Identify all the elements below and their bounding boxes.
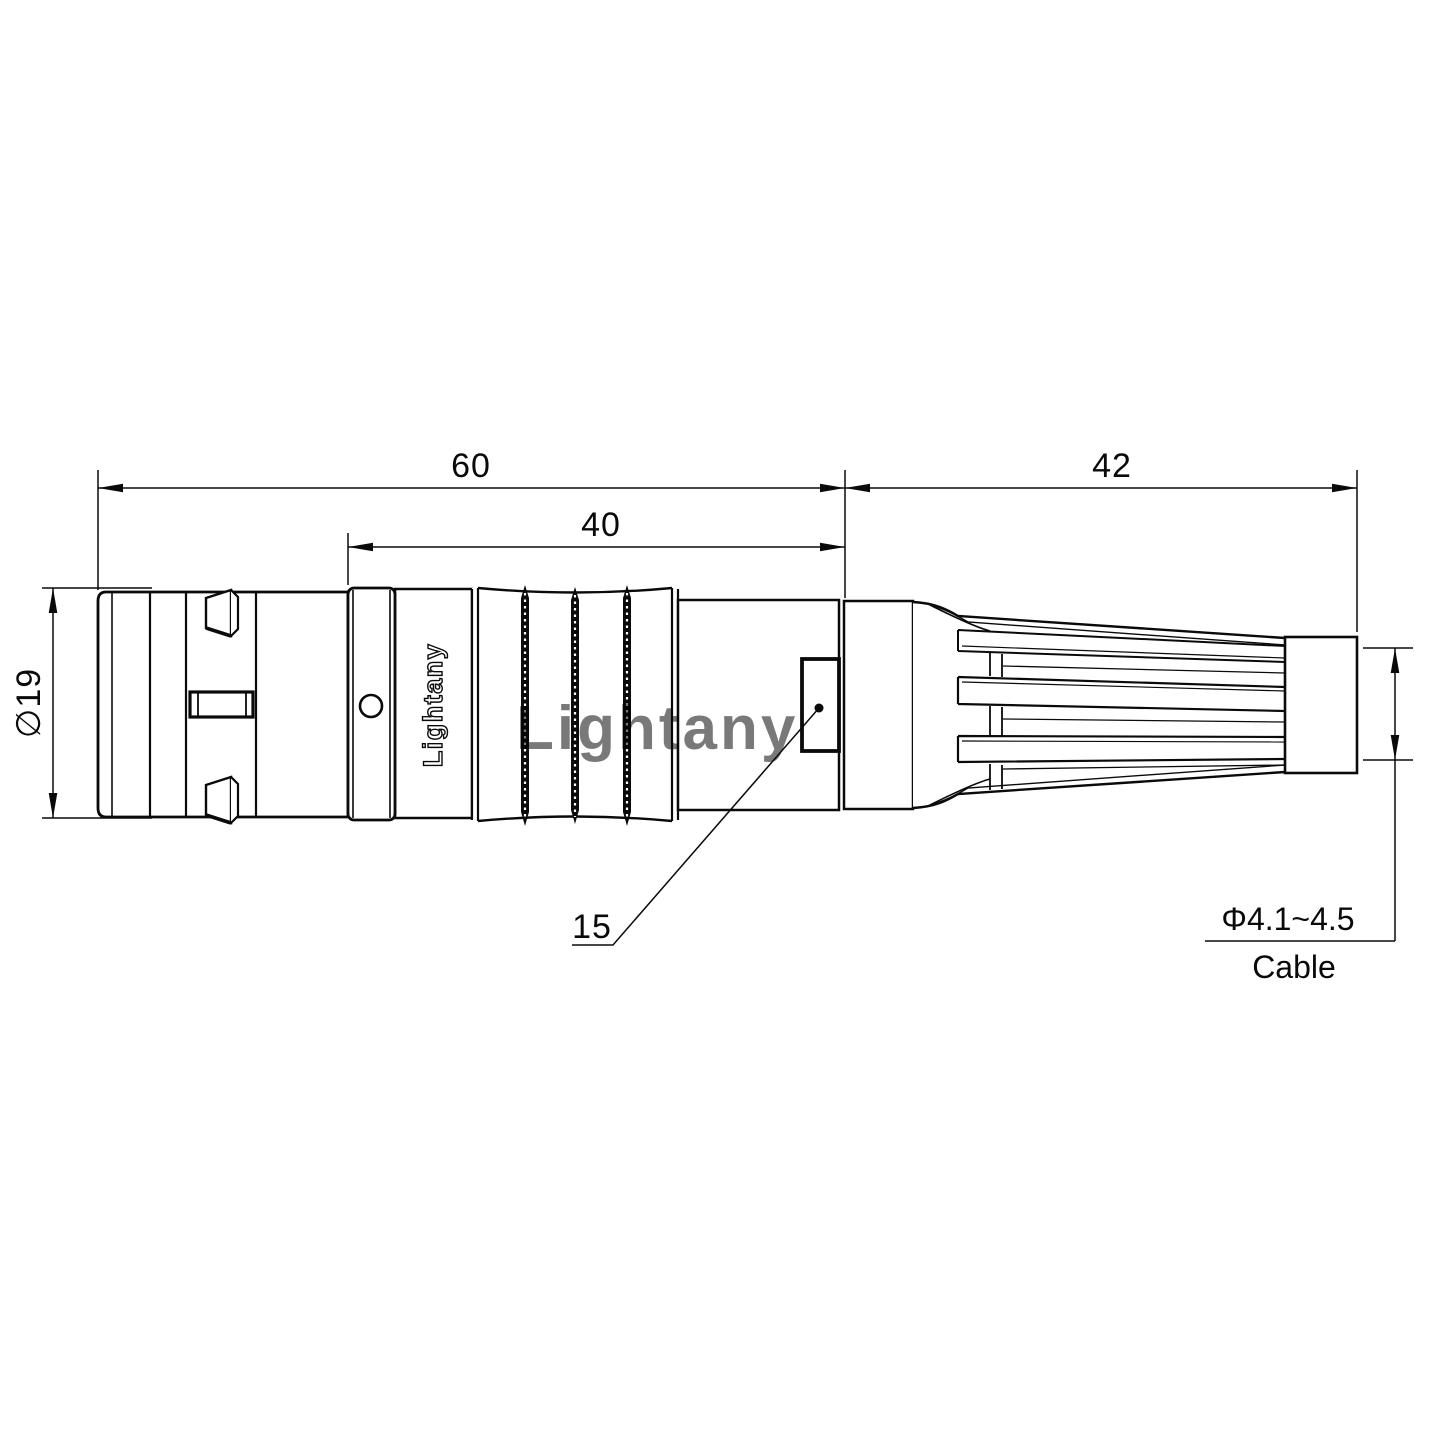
vent-hole bbox=[360, 695, 382, 717]
cable-end-cap bbox=[1285, 637, 1357, 773]
dim-window-label: 15 bbox=[572, 908, 612, 946]
bayonet-key-top bbox=[206, 590, 238, 636]
key-window-slot bbox=[190, 692, 253, 717]
cable-spec-label: Φ4.1~4.5 bbox=[1221, 901, 1354, 937]
body-brand-text: Lightany bbox=[418, 643, 448, 768]
watermark-text: Lightany bbox=[516, 694, 798, 763]
bayonet-key-bottom bbox=[206, 777, 238, 823]
drawing-canvas: Lightany Lightany 60 40 42 ∅19 15 bbox=[0, 0, 1440, 1440]
dim-diameter-label: ∅19 bbox=[10, 668, 48, 738]
strain-relief-flutes bbox=[913, 602, 1285, 808]
dimension-grip-length: 40 bbox=[348, 506, 845, 585]
connector-technical-drawing: Lightany Lightany 60 40 42 ∅19 15 bbox=[0, 0, 1440, 1440]
dim-total-label: 60 bbox=[451, 447, 491, 485]
dim-grip-label: 40 bbox=[581, 506, 621, 544]
dim-boot-label: 42 bbox=[1092, 447, 1132, 485]
cable-label: Cable bbox=[1252, 949, 1336, 985]
locking-ring bbox=[348, 588, 395, 820]
dimension-total-length: 60 bbox=[98, 447, 845, 598]
